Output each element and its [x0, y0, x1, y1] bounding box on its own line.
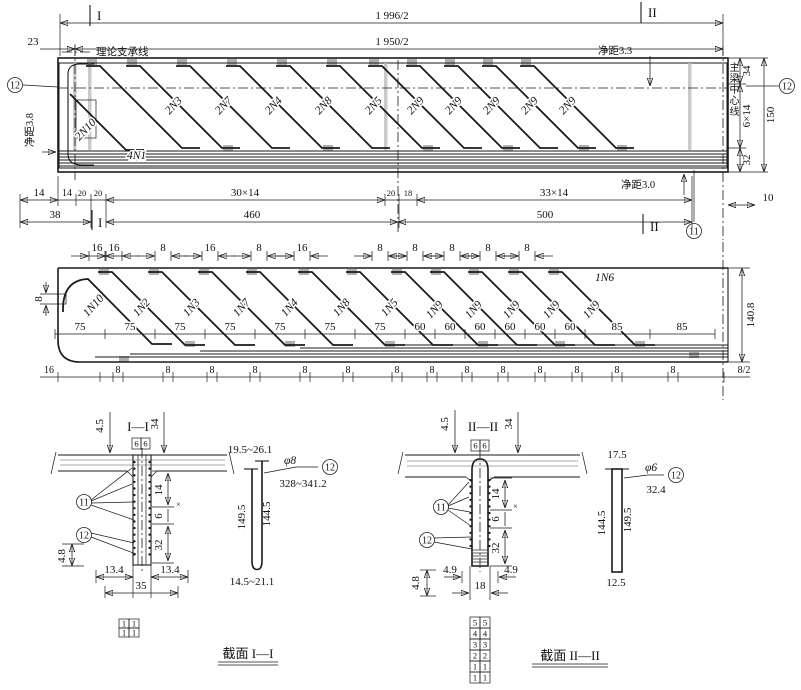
callout-12-left: 12 [10, 81, 20, 92]
callout-11: 11 [436, 503, 446, 514]
dim-top: 17.5 [607, 449, 627, 461]
dim-20c: 20 [387, 188, 396, 198]
dim-140-8: 140.8 [745, 302, 757, 327]
dim-18: 18 [404, 188, 413, 198]
grid-cell: 1 [483, 673, 487, 683]
dim-4-9: 4.9 [443, 564, 457, 576]
box-6: 6 [482, 441, 486, 451]
dim-144-5: 144.5 [261, 501, 273, 526]
dim-35: 35 [136, 580, 148, 592]
dim-32: 32 [490, 543, 502, 554]
dim-18: 18 [475, 580, 487, 592]
grid-cell: 2 [473, 651, 477, 661]
dim: 75 [75, 321, 87, 333]
callout-12-right: 12 [782, 82, 792, 93]
callout-12: 12 [422, 536, 432, 547]
beam-reinforcement-drawing: I II 1 996/2 23 1 950/2 理论支承线 净距3.3 [0, 0, 801, 690]
dim: 16 [297, 242, 309, 254]
box-6: 6 [134, 439, 138, 449]
dim-4-8: 4.8 [410, 576, 422, 590]
dim: 85 [612, 321, 624, 333]
dim: 60 [415, 321, 427, 333]
dim-length: 32.4 [646, 484, 666, 496]
dim-1950-2: 1 950/2 [375, 36, 408, 48]
dim-6: 6 [153, 513, 165, 519]
bar-label-2N10: 2N10 [73, 117, 99, 143]
dim-149-5: 149.5 [236, 504, 248, 529]
dim-14: 14 [153, 484, 165, 496]
dim: 8 [210, 365, 215, 376]
dim: 8 [615, 365, 620, 376]
dim-4-8: 4.8 [56, 549, 68, 563]
clear-dist-3-0: 净距3.0 [621, 178, 655, 191]
grid-cell: 1 [122, 628, 126, 638]
bar-label: 1N2 [131, 297, 153, 319]
main-beam-centerline-label: 主梁中心线 [727, 62, 737, 117]
dim-14b: 14 [62, 188, 72, 199]
bar-label: 1N8 [331, 297, 353, 319]
section-marker-I-bottom: I [98, 215, 102, 230]
dim: 16 [92, 242, 104, 254]
dim-8-2: 8/2 [738, 365, 751, 376]
bar-label-1N10: 1N10 [81, 293, 107, 320]
dim: 8 [524, 242, 530, 254]
bar-label: 2N8 [313, 95, 335, 117]
dim-8-left: 8 [33, 296, 45, 302]
bar-label: 2N5 [363, 95, 385, 117]
drawing-canvas: I II 1 996/2 23 1 950/2 理论支承线 净距3.3 [0, 0, 801, 690]
dim: 16 [109, 242, 121, 254]
dim-30x14: 30×14 [231, 187, 260, 199]
dim-x: × [176, 499, 181, 509]
dim-1996-2: 1 996/2 [375, 10, 408, 22]
dim: 8 [256, 242, 262, 254]
clear-dist-3-8: 净距3.8 [23, 113, 36, 147]
dim-23: 23 [28, 36, 40, 48]
bar-label: 1N4 [279, 297, 301, 319]
grid-cell: 3 [473, 640, 477, 650]
section-marker-I-top: I [97, 8, 101, 23]
dim-34: 34 [503, 418, 515, 430]
dim: 8 [449, 242, 455, 254]
bar-label: 2N9 [405, 95, 427, 117]
dim: 8 [166, 365, 171, 376]
dim: 75 [175, 321, 187, 333]
dim: 75 [375, 321, 387, 333]
dim-149-5: 149.5 [622, 507, 634, 532]
bar-label: 1N9 [541, 299, 563, 321]
dim: 8 [465, 365, 470, 376]
bar-label: 1N9 [424, 299, 446, 321]
extension-ticks [20, 176, 692, 228]
dim-34: 34 [149, 418, 161, 430]
dim-32: 32 [153, 540, 165, 551]
bar-label: 2N9 [443, 95, 465, 117]
bar-diameter: φ6 [645, 462, 657, 474]
dim: 8 [395, 365, 400, 376]
dim: 75 [225, 321, 237, 333]
grid-cell: 2 [483, 651, 487, 661]
dim: 60 [535, 321, 547, 333]
box-6: 6 [473, 441, 477, 451]
dim-bottom: 12.5 [606, 577, 626, 589]
dim: 60 [445, 321, 457, 333]
box-6: 6 [143, 439, 147, 449]
bar-label: 1N9 [581, 299, 603, 321]
bar-label: 2N7 [213, 94, 236, 117]
dim: 85 [677, 321, 689, 333]
grid-cell: 4 [483, 629, 488, 639]
dim-top: 19.5~26.1 [228, 444, 272, 456]
dim-x: × [513, 501, 518, 511]
lower-top-dims [71, 251, 553, 261]
bar-label: 2N4 [263, 95, 285, 117]
support-line-label: 理论支承线 [96, 45, 149, 58]
dim-20a: 20 [78, 188, 87, 198]
dim: 8 [501, 365, 506, 376]
dim: 75 [325, 321, 337, 333]
dim-14: 14 [490, 488, 502, 500]
bar-label: 2N9 [519, 95, 541, 117]
bar-label: 2N3 [163, 95, 185, 117]
grid-cell: 1 [473, 673, 477, 683]
section-marker-II-bottom: II [650, 219, 659, 234]
bar-label: 1N9 [463, 299, 485, 321]
dim-460: 460 [244, 209, 261, 221]
dim-33x14: 33×14 [540, 187, 569, 199]
dim-bottom: 14.5~21.1 [230, 576, 274, 588]
bottom-bar-bundle [58, 151, 728, 166]
dim-4-5: 4.5 [94, 419, 106, 433]
dim-34: 34 [741, 65, 753, 77]
grid-cell: 3 [483, 640, 487, 650]
bar-label-1N6: 1N6 [595, 272, 614, 284]
dim-6: 6 [490, 516, 502, 522]
section-title: II—II [468, 419, 498, 434]
section-II-II: II—II 4.5 34 6 6 11 12 14 6 × 32 4.9 4.9… [398, 410, 608, 683]
dim-4-9: 4.9 [504, 564, 518, 576]
dim: 8 [116, 365, 121, 376]
lower-view-bar-layout: 16 16 8 16 8 16 8 8 8 8 8 [33, 242, 757, 400]
bar-label: 2N9 [557, 95, 579, 117]
grid-cell: 1 [483, 662, 487, 672]
section-title: I—I [127, 419, 149, 434]
dim-38: 38 [50, 209, 62, 221]
section-marker-II-top: II [648, 5, 657, 20]
callout-12: 12 [325, 463, 335, 474]
dim-14a: 14 [34, 187, 46, 199]
dim: 8 [377, 242, 383, 254]
dim: 8 [538, 365, 543, 376]
grid-cell: 1 [473, 662, 477, 672]
dim-6x14: 6×14 [741, 104, 753, 127]
dim: 8 [303, 365, 308, 376]
dim: 16 [44, 365, 54, 376]
callout-11: 11 [79, 498, 89, 509]
grid-cell: 5 [483, 618, 487, 628]
dim-32: 32 [741, 155, 753, 166]
caption-section-I: 截面 I—I [223, 646, 274, 661]
bar-diameter: φ8 [284, 455, 296, 467]
bar-detail-N12-phi8: 19.5~26.1 φ8 12 328~341.2 149.5 144.5 14… [228, 444, 338, 588]
dim: 8 [346, 365, 351, 376]
dim: 8 [160, 242, 166, 254]
grid-cell: 5 [473, 618, 477, 628]
bent-up-bars [70, 66, 634, 150]
dim-10: 10 [763, 192, 775, 204]
bar-label: 1N9 [501, 299, 523, 321]
dim-500: 500 [537, 209, 554, 221]
bar-label-4N1: 4N1 [127, 150, 146, 162]
dim: 16 [205, 242, 217, 254]
callout-12: 12 [79, 531, 89, 542]
dim-length: 328~341.2 [279, 478, 326, 490]
bar-label: 1N5 [379, 297, 401, 319]
dim: 75 [125, 321, 137, 333]
dim: 8 [430, 365, 435, 376]
bar-label: 1N7 [231, 296, 254, 319]
dim-13-4: 13.4 [160, 564, 180, 576]
dim-13-4: 13.4 [104, 564, 124, 576]
dim: 8 [412, 242, 418, 254]
dim-150: 150 [765, 106, 777, 123]
dim: 60 [565, 321, 577, 333]
grid-cell: 4 [473, 629, 478, 639]
bar-label: 1N3 [181, 297, 203, 319]
dim: 60 [475, 321, 487, 333]
grid-cell: 1 [132, 628, 136, 638]
dim: 8 [575, 365, 580, 376]
caption-section-II: 截面 II—II [540, 648, 600, 663]
callout-11: 11 [689, 227, 699, 238]
bar-label: 2N9 [481, 95, 503, 117]
dim: 75 [275, 321, 287, 333]
dim: 8 [671, 365, 676, 376]
dim: 8 [485, 242, 491, 254]
dim: 8 [253, 365, 258, 376]
dim-20b: 20 [94, 188, 103, 198]
callout-12: 12 [671, 471, 681, 482]
dim: 60 [505, 321, 517, 333]
bar-detail-N12-phi6: 17.5 φ6 12 32.4 144.5 149.5 12.5 [596, 449, 684, 589]
dim-144-5: 144.5 [596, 510, 608, 535]
top-view-elevation: I II 1 996/2 23 1 950/2 理论支承线 净距3.3 [8, 2, 795, 240]
dim-4-5: 4.5 [439, 417, 451, 431]
clear-dist-3-3: 净距3.3 [598, 44, 632, 57]
